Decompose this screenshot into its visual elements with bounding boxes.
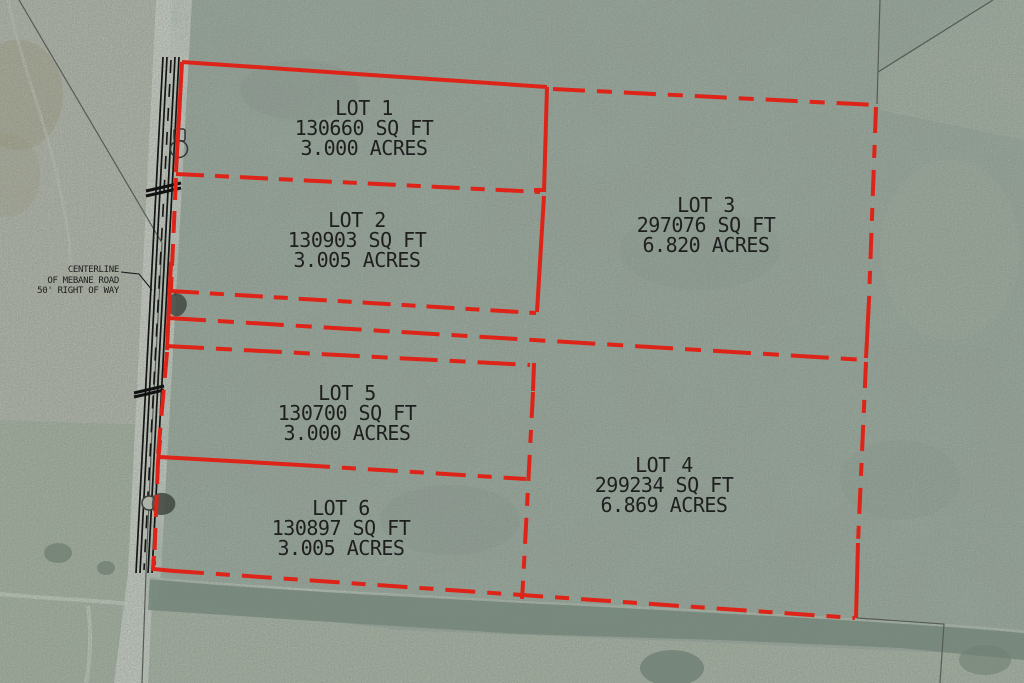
lot-1-name: LOT 1 [295, 98, 434, 118]
lot-3-sqft: 297076 SQ FT [637, 215, 776, 235]
plat-map-canvas: LOT 1 130660 SQ FT 3.000 ACRES LOT 2 130… [0, 0, 1024, 683]
lot-2-acres: 3.005 ACRES [288, 250, 427, 270]
lot-4-acres: 6.869 ACRES [595, 495, 734, 515]
lot-4-label: LOT 4 299234 SQ FT 6.869 ACRES [595, 455, 734, 515]
lot-4-sqft: 299234 SQ FT [595, 475, 734, 495]
aerial-photo-background [0, 0, 1024, 683]
lot-6-acres: 3.005 ACRES [272, 538, 411, 558]
lot-2-label: LOT 2 130903 SQ FT 3.005 ACRES [288, 210, 427, 270]
road-label-line-1: CENTERLINE [37, 265, 119, 276]
lot-1-acres: 3.000 ACRES [295, 138, 434, 158]
lot-2-sqft: 130903 SQ FT [288, 230, 427, 250]
lot-5-name: LOT 5 [278, 383, 417, 403]
lot-6-name: LOT 6 [272, 498, 411, 518]
lot-5-label: LOT 5 130700 SQ FT 3.000 ACRES [278, 383, 417, 443]
aerial-base-layers [0, 0, 1024, 683]
road-label-line-2: OF MEBANE ROAD [37, 276, 119, 287]
lot-3-name: LOT 3 [637, 195, 776, 215]
lot-2-name: LOT 2 [288, 210, 427, 230]
lot-3-acres: 6.820 ACRES [637, 235, 776, 255]
road-centerline-label: CENTERLINE OF MEBANE ROAD 50' RIGHT OF W… [37, 265, 119, 297]
lot-5-acres: 3.000 ACRES [278, 423, 417, 443]
lot-1-label: LOT 1 130660 SQ FT 3.000 ACRES [295, 98, 434, 158]
lot-6-sqft: 130897 SQ FT [272, 518, 411, 538]
lot-1-sqft: 130660 SQ FT [295, 118, 434, 138]
lot-5-sqft: 130700 SQ FT [278, 403, 417, 423]
road-label-line-3: 50' RIGHT OF WAY [37, 286, 119, 297]
lot-6-label: LOT 6 130897 SQ FT 3.005 ACRES [272, 498, 411, 558]
lot-4-name: LOT 4 [595, 455, 734, 475]
lot-3-label: LOT 3 297076 SQ FT 6.820 ACRES [637, 195, 776, 255]
